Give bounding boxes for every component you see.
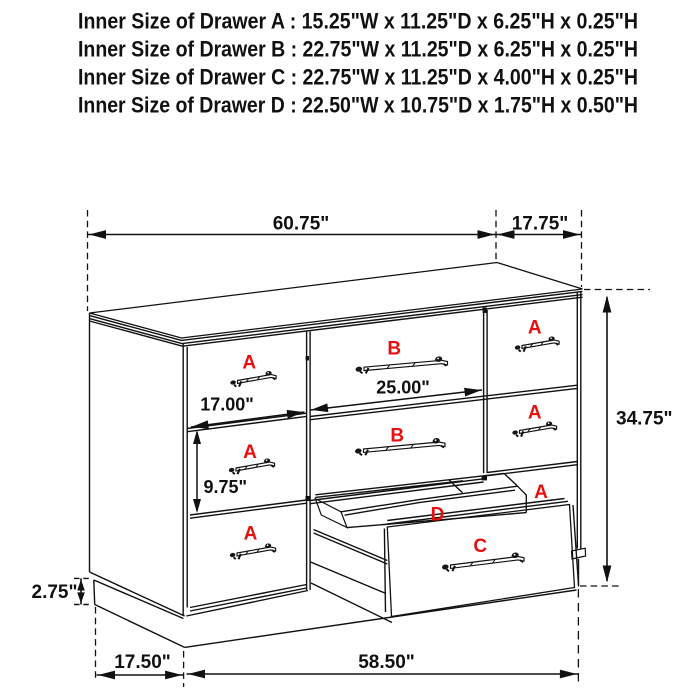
svg-text:17.50": 17.50" [114,652,171,673]
svg-text:Inner Size of Drawer B : 22.75: Inner Size of Drawer B : 22.75"W x 11.25… [78,37,638,62]
svg-text:A: A [534,482,548,503]
svg-text:17.00": 17.00" [200,395,254,415]
svg-text:C: C [473,536,487,557]
svg-text:D: D [431,505,445,526]
svg-text:34.75": 34.75" [616,409,673,430]
svg-text:Inner Size of Drawer D : 22.5: Inner Size of Drawer D : 22.50"W x 10.75… [78,93,638,118]
svg-text:9.75": 9.75" [204,477,248,497]
svg-text:Inner Size of Drawer A : 15.25: Inner Size of Drawer A : 15.25"W x 11.25… [78,9,638,34]
svg-text:17.75": 17.75" [512,214,569,235]
svg-text:A: A [242,353,256,374]
svg-text:A: A [528,403,542,424]
svg-text:B: B [387,339,401,360]
svg-text:A: A [243,442,257,463]
svg-text:A: A [528,318,542,339]
svg-text:A: A [244,524,258,545]
svg-text:B: B [390,426,404,447]
svg-text:2.75": 2.75" [32,582,78,603]
svg-text:60.75": 60.75" [273,214,330,235]
svg-text:25.00": 25.00" [376,378,430,398]
svg-text:58.50": 58.50" [358,652,415,673]
svg-text:Inner Size of Drawer C : 22.75: Inner Size of Drawer C : 22.75"W x 11.25… [78,65,638,90]
